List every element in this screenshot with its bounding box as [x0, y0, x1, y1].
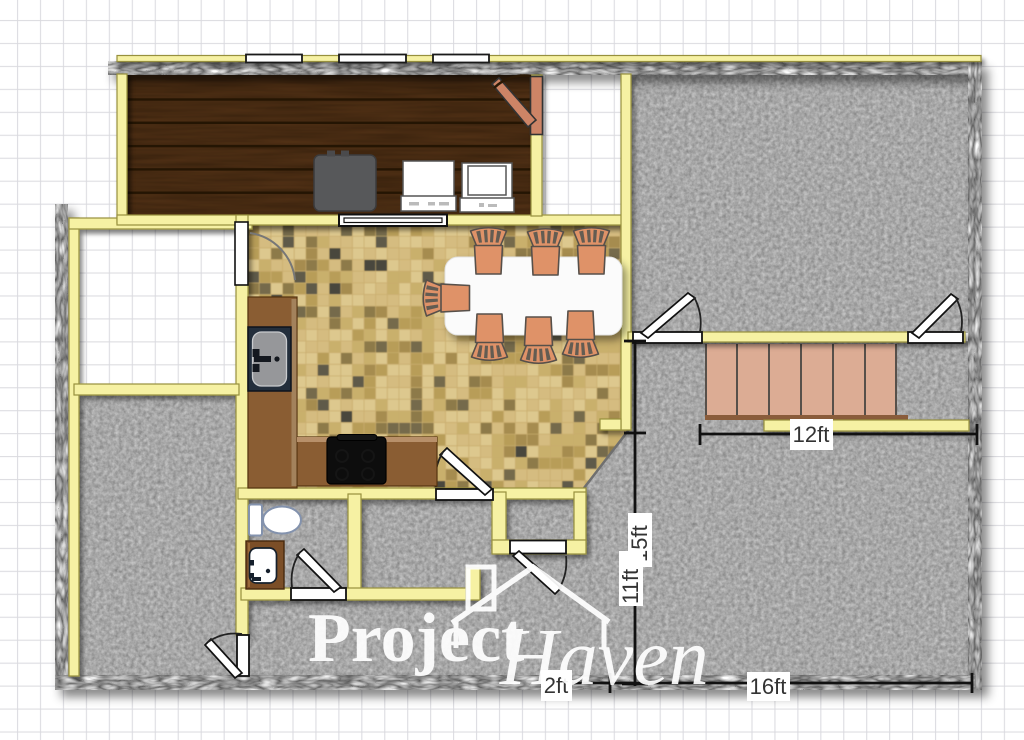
svg-text:Project: Project — [308, 600, 524, 677]
svg-text:12ft: 12ft — [793, 422, 830, 447]
svg-text:11ft: 11ft — [618, 569, 643, 604]
svg-text:Haven: Haven — [499, 614, 709, 702]
svg-text:16ft: 16ft — [750, 674, 787, 699]
